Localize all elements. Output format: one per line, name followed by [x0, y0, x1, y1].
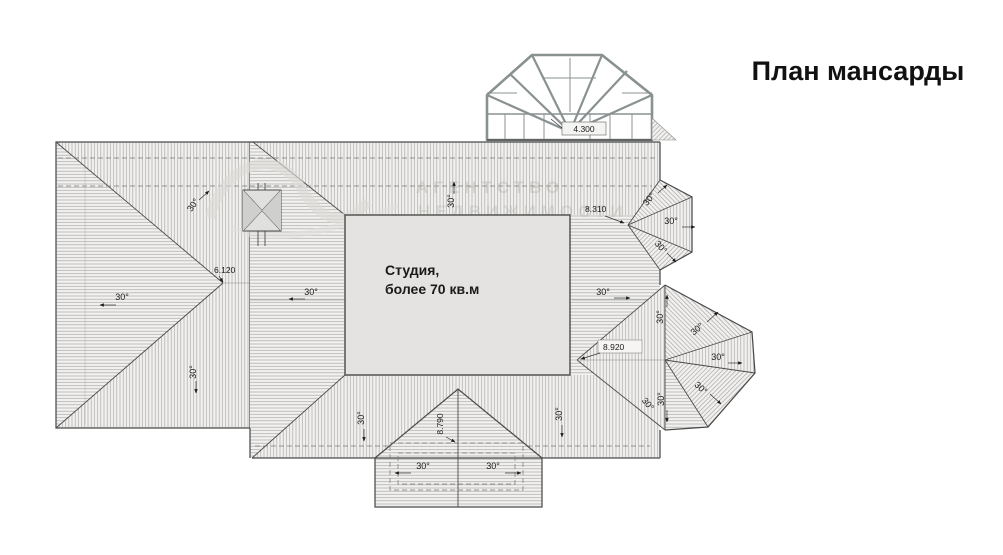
- studio-label-line2: более 70 кв.м: [385, 281, 479, 297]
- angle-label: 30°: [554, 407, 564, 421]
- angle-label: 30°: [304, 287, 318, 297]
- dimension-label-dormer: 8.790: [435, 413, 445, 435]
- dimension-label-left: 6.120: [214, 265, 236, 275]
- dimension-label-dome: 4.300: [573, 124, 595, 134]
- dome-skylight: 4.300: [487, 55, 676, 140]
- angle-label: 30°: [486, 461, 500, 471]
- angle-label: 30°: [664, 216, 678, 226]
- angle-label: 30°: [356, 411, 366, 425]
- dimension-label-bay-top: 8.310: [585, 204, 607, 214]
- angle-label: 30°: [115, 292, 129, 302]
- angle-label: 30°: [446, 194, 456, 208]
- page-title: План мансарды: [752, 56, 965, 86]
- dimension-label-bay-bottom: 8.920: [603, 342, 625, 352]
- angle-label: 30°: [656, 392, 666, 406]
- angle-label: 30°: [596, 287, 610, 297]
- roof-plan-svg: АГЕНТСТВО НЕДВИЖИМОСТИ Студия, более 70 …: [0, 0, 1003, 555]
- angle-label: 30°: [655, 310, 665, 324]
- studio-label-line1: Студия,: [385, 262, 439, 278]
- floor-plan-canvas: АГЕНТСТВО НЕДВИЖИМОСТИ Студия, более 70 …: [0, 0, 1003, 555]
- angle-label: 30°: [188, 365, 198, 379]
- angle-label: 30°: [711, 352, 725, 362]
- watermark-line-1: АГЕНТСТВО: [416, 178, 564, 197]
- studio-room: Студия, более 70 кв.м: [345, 215, 570, 375]
- angle-label: 30°: [416, 461, 430, 471]
